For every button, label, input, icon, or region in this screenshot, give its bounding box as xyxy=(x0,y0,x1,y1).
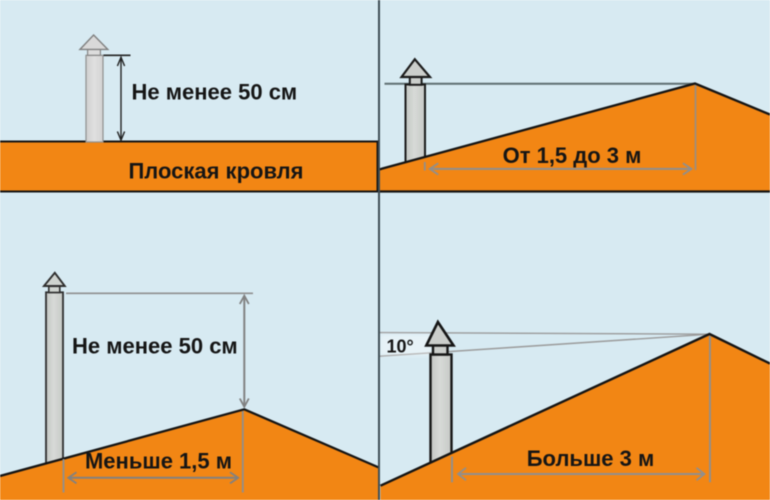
svg-text:Не менее 50 см: Не менее 50 см xyxy=(132,80,298,105)
svg-text:От 1,5 до 3 м: От 1,5 до 3 м xyxy=(503,143,642,168)
svg-text:10°: 10° xyxy=(387,337,414,357)
svg-text:Плоская кровля: Плоская кровля xyxy=(128,159,303,184)
svg-text:Больше 3 м: Больше 3 м xyxy=(527,446,655,471)
svg-text:Меньше 1,5 м: Меньше 1,5 м xyxy=(85,449,232,474)
svg-text:Не менее 50 см: Не менее 50 см xyxy=(72,334,238,359)
